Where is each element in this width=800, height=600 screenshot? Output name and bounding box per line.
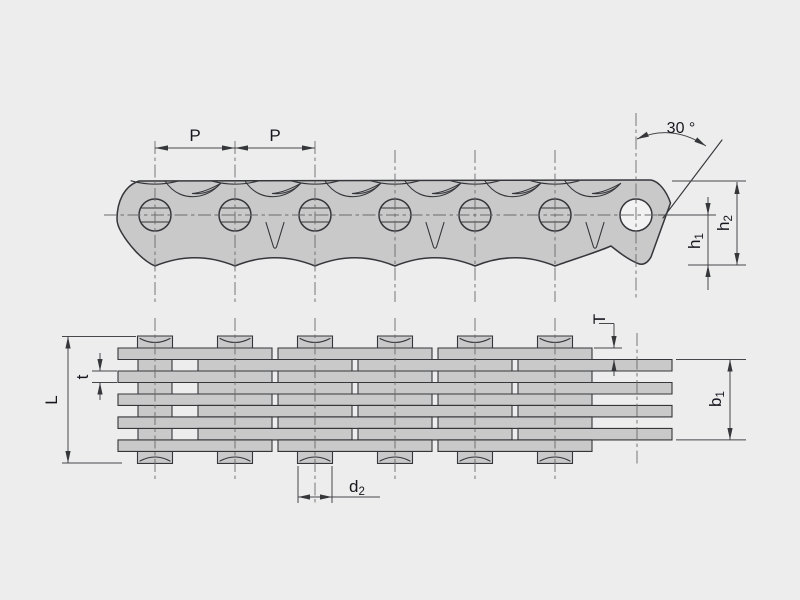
pin-end-arcs-bottom xyxy=(140,457,570,461)
silent-chain-technical-drawing: P P 30 ° h1 h2 xyxy=(0,0,800,600)
arrowhead xyxy=(65,451,70,463)
dim-label-angle: 30 ° xyxy=(667,120,696,137)
arrowhead xyxy=(222,145,235,150)
link-plate-row-3 xyxy=(118,371,592,383)
arrowhead xyxy=(611,336,616,348)
technical-drawing-canvas: P P 30 ° h1 h2 xyxy=(0,0,800,600)
arrowhead xyxy=(65,337,70,349)
dim-b1: b1 xyxy=(676,360,746,440)
link-plate-row-8 xyxy=(198,428,672,440)
arrowhead xyxy=(727,360,732,372)
link-plate-row-7 xyxy=(118,417,592,429)
dim-label-h1: h1 xyxy=(685,233,706,249)
t-extension-lines xyxy=(92,371,117,383)
arrowhead xyxy=(694,137,706,146)
pin-end-washers-bottom xyxy=(138,451,573,463)
dim-label-d2: d2 xyxy=(349,477,365,498)
arrowhead xyxy=(97,383,102,395)
dim-label-pitch-right: P xyxy=(269,126,280,145)
pin-end-washers-top xyxy=(138,336,573,348)
link-plate-row-6 xyxy=(198,405,672,417)
arrowhead xyxy=(734,253,739,265)
dim-label-b1: b1 xyxy=(706,391,727,407)
arrowhead xyxy=(705,203,710,215)
arrowhead xyxy=(705,265,710,277)
arrowhead xyxy=(302,145,315,150)
pin-end-arcs-top xyxy=(140,339,570,343)
arrowhead xyxy=(320,494,332,499)
dim-label-pitch-left: P xyxy=(189,126,200,145)
arrowhead xyxy=(727,428,732,440)
arrowhead xyxy=(235,145,248,150)
link-plate-row-2 xyxy=(198,360,672,372)
arrowhead xyxy=(734,182,739,194)
arrowhead xyxy=(298,494,310,499)
dim-d2: d2 xyxy=(298,466,380,503)
arrowhead xyxy=(155,145,168,150)
side-view xyxy=(117,140,722,266)
dim-label-t: t xyxy=(73,374,92,379)
dim-label-T: T xyxy=(590,314,609,324)
dim-label-L: L xyxy=(42,395,61,404)
dim-angle-30: 30 ° xyxy=(637,120,706,146)
arrowhead xyxy=(637,132,649,139)
dim-t: t xyxy=(73,353,117,400)
angle-slant-line xyxy=(663,140,722,218)
link-plate-row-4 xyxy=(198,383,672,395)
dim-label-h2: h2 xyxy=(714,215,735,231)
link-plate-row-9 xyxy=(118,440,592,452)
link-plate-row-5 xyxy=(118,394,592,405)
arrowhead xyxy=(97,359,102,371)
dim-h2: h2 xyxy=(672,181,746,265)
link-plate-row-1 xyxy=(118,348,592,360)
